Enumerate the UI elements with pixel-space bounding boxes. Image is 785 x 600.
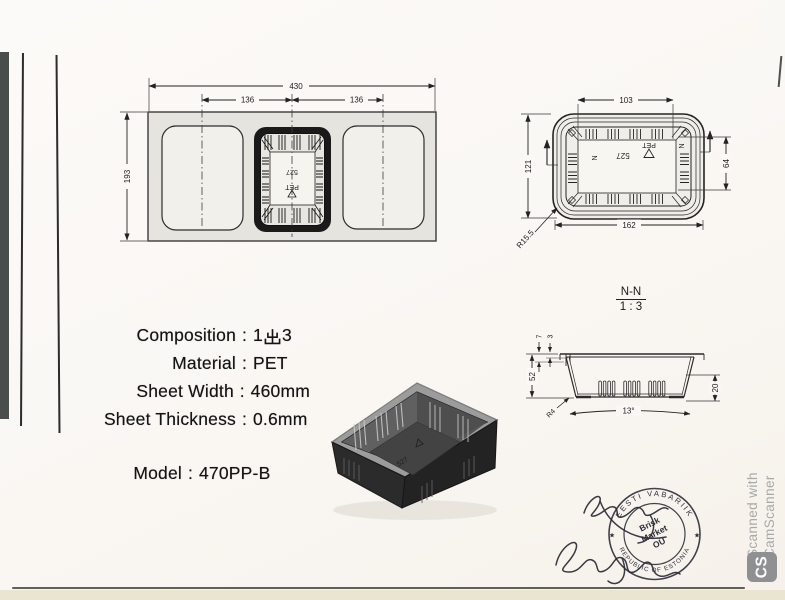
spec-separator: : xyxy=(236,325,253,346)
camscanner-watermark-text: Scanned with CamScanner xyxy=(745,438,779,558)
dim-193: 193 xyxy=(120,112,147,241)
svg-text:64: 64 xyxy=(722,159,731,168)
tray-body xyxy=(332,383,497,508)
spec-separator: : xyxy=(234,381,251,402)
stamp-star-left: ★ xyxy=(609,532,615,540)
section-scale: 1 : 3 xyxy=(604,301,658,313)
svg-text:R15.5: R15.5 xyxy=(515,228,536,250)
dim-bottom-radius: R4 xyxy=(546,398,569,419)
spec-separator: : xyxy=(236,409,253,430)
tray-bottom-panel xyxy=(578,140,676,193)
spec-value: 0.6mm xyxy=(253,409,310,430)
spec-label: Sheet Width xyxy=(78,381,234,402)
camscanner-logo-badge: CS xyxy=(747,552,777,582)
cavity-right xyxy=(343,126,424,229)
dim-136-left: 136 xyxy=(202,95,292,105)
spec-row-model: Model : 470PP-B xyxy=(78,459,310,487)
spec-row-sheet-width: Sheet Width : 460mm xyxy=(78,377,310,405)
section-view-drawing: 52 7 3 20 13° R4 xyxy=(512,322,732,434)
spec-table: Composition : 1 3 Material : PET Sheet W… xyxy=(78,321,310,487)
spec-label: Material xyxy=(78,353,236,374)
svg-text:103: 103 xyxy=(619,96,633,105)
dim-121: 121 xyxy=(521,114,557,218)
svg-text:13°: 13° xyxy=(622,407,634,416)
spec-label: Composition xyxy=(78,325,236,346)
svg-text:N: N xyxy=(679,143,686,148)
svg-text:3: 3 xyxy=(548,334,555,338)
spec-value: 470PP-B xyxy=(199,463,310,484)
section-title: N-N 1 : 3 xyxy=(604,286,658,313)
cjk-character-chu xyxy=(264,328,281,345)
svg-text:7: 7 xyxy=(537,334,544,338)
dim-7: 7 xyxy=(535,334,564,372)
spec-label: Model xyxy=(78,463,182,484)
mold-number-mark: 527 xyxy=(616,151,630,160)
spec-value: PET xyxy=(253,353,310,374)
watermark-line2: CamScanner xyxy=(762,438,779,558)
section-name: N-N xyxy=(616,286,646,300)
tray-3d-render: 527 xyxy=(318,340,523,525)
stamp-star-right: ★ xyxy=(694,532,700,540)
watermark-line1: Scanned with xyxy=(745,438,762,558)
spec-separator: : xyxy=(182,463,199,484)
stamp-and-signatures: EESTI VABARIIK REPUBLIC OF ESTONIA ★ ★ B… xyxy=(540,455,770,595)
dim-20: 20 xyxy=(686,375,721,401)
cavity-left xyxy=(162,126,243,230)
svg-text:430: 430 xyxy=(289,82,303,91)
desk-surface-strip xyxy=(0,590,785,600)
svg-text:N: N xyxy=(592,155,599,160)
svg-text:52: 52 xyxy=(528,372,537,381)
tray-shadow xyxy=(333,500,497,520)
spec-label: Sheet Thickness xyxy=(78,409,236,430)
section-profile xyxy=(560,354,704,397)
page-bottom-edge xyxy=(12,587,745,589)
spec-row-material: Material : PET xyxy=(78,349,310,377)
scan-shadow-band xyxy=(0,52,9,419)
dim-162: 162 xyxy=(555,220,703,231)
spec-value: 460mm xyxy=(251,381,310,402)
svg-text:193: 193 xyxy=(123,169,132,183)
spec-separator: : xyxy=(236,353,253,374)
page-edge-line xyxy=(20,53,24,426)
scanned-spec-sheet: 527 PET 430 136 136 xyxy=(0,0,785,600)
spec-value: 1 3 xyxy=(253,325,310,346)
svg-text:136: 136 xyxy=(350,96,364,105)
dim-corner-radius: R15.5 xyxy=(515,208,557,250)
spec-row-sheet-thickness: Sheet Thickness : 0.6mm xyxy=(78,405,310,433)
svg-text:20: 20 xyxy=(711,383,720,392)
dim-136-right: 136 xyxy=(292,95,383,105)
svg-text:R4: R4 xyxy=(546,408,557,419)
dim-13deg: 13° xyxy=(570,406,690,416)
svg-text:136: 136 xyxy=(241,96,255,105)
sheet-layout-drawing: 527 PET 430 136 136 xyxy=(100,50,445,250)
cs-logo-text: CS xyxy=(753,556,771,579)
page-edge-line xyxy=(56,55,61,433)
spec-row-composition: Composition : 1 3 xyxy=(78,321,310,349)
cavity-center-formed-tray: 527 PET xyxy=(254,127,331,232)
svg-text:121: 121 xyxy=(524,159,533,173)
tray-top-view-drawing: 527 PET N N 103 121 xyxy=(495,66,785,256)
svg-text:PET: PET xyxy=(641,141,655,148)
svg-text:162: 162 xyxy=(622,221,636,230)
